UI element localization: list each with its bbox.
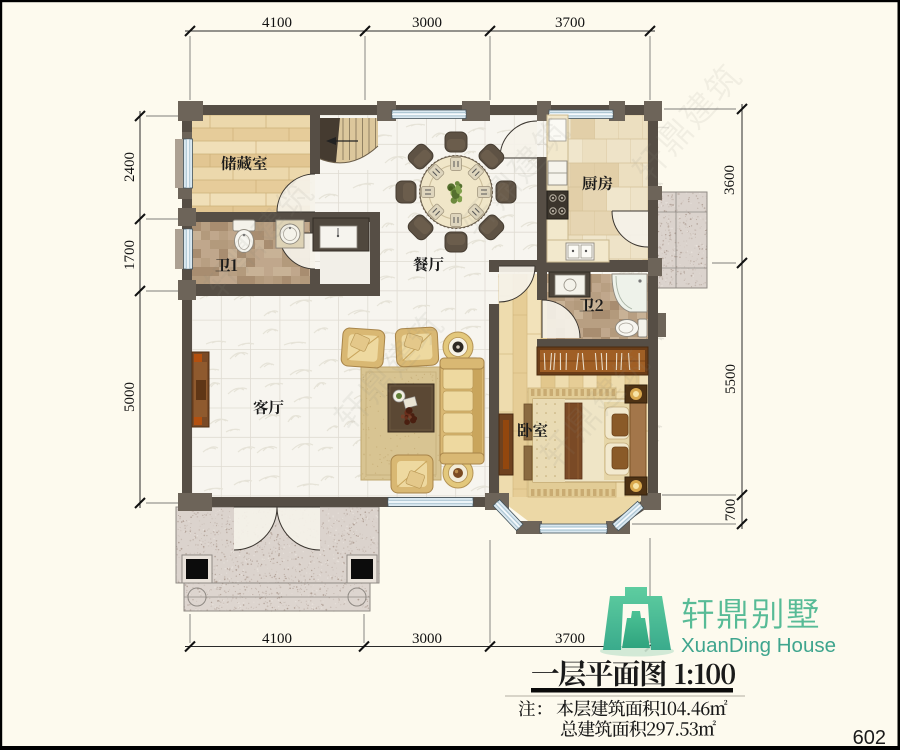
svg-text:3700: 3700: [555, 631, 585, 647]
svg-text:3600: 3600: [722, 165, 738, 195]
svg-text:1700: 1700: [122, 240, 138, 270]
svg-text:3700: 3700: [555, 15, 585, 31]
svg-text:5000: 5000: [122, 382, 138, 412]
svg-text:700: 700: [723, 499, 739, 522]
svg-text:5500: 5500: [723, 364, 739, 394]
svg-text:602: 602: [853, 727, 886, 749]
svg-text:XuanDing House: XuanDing House: [681, 634, 836, 657]
svg-text:3000: 3000: [412, 631, 442, 647]
svg-text:4100: 4100: [262, 631, 292, 647]
svg-text:2400: 2400: [122, 152, 138, 182]
svg-text:3000: 3000: [412, 15, 442, 31]
svg-text:4100: 4100: [262, 15, 292, 31]
